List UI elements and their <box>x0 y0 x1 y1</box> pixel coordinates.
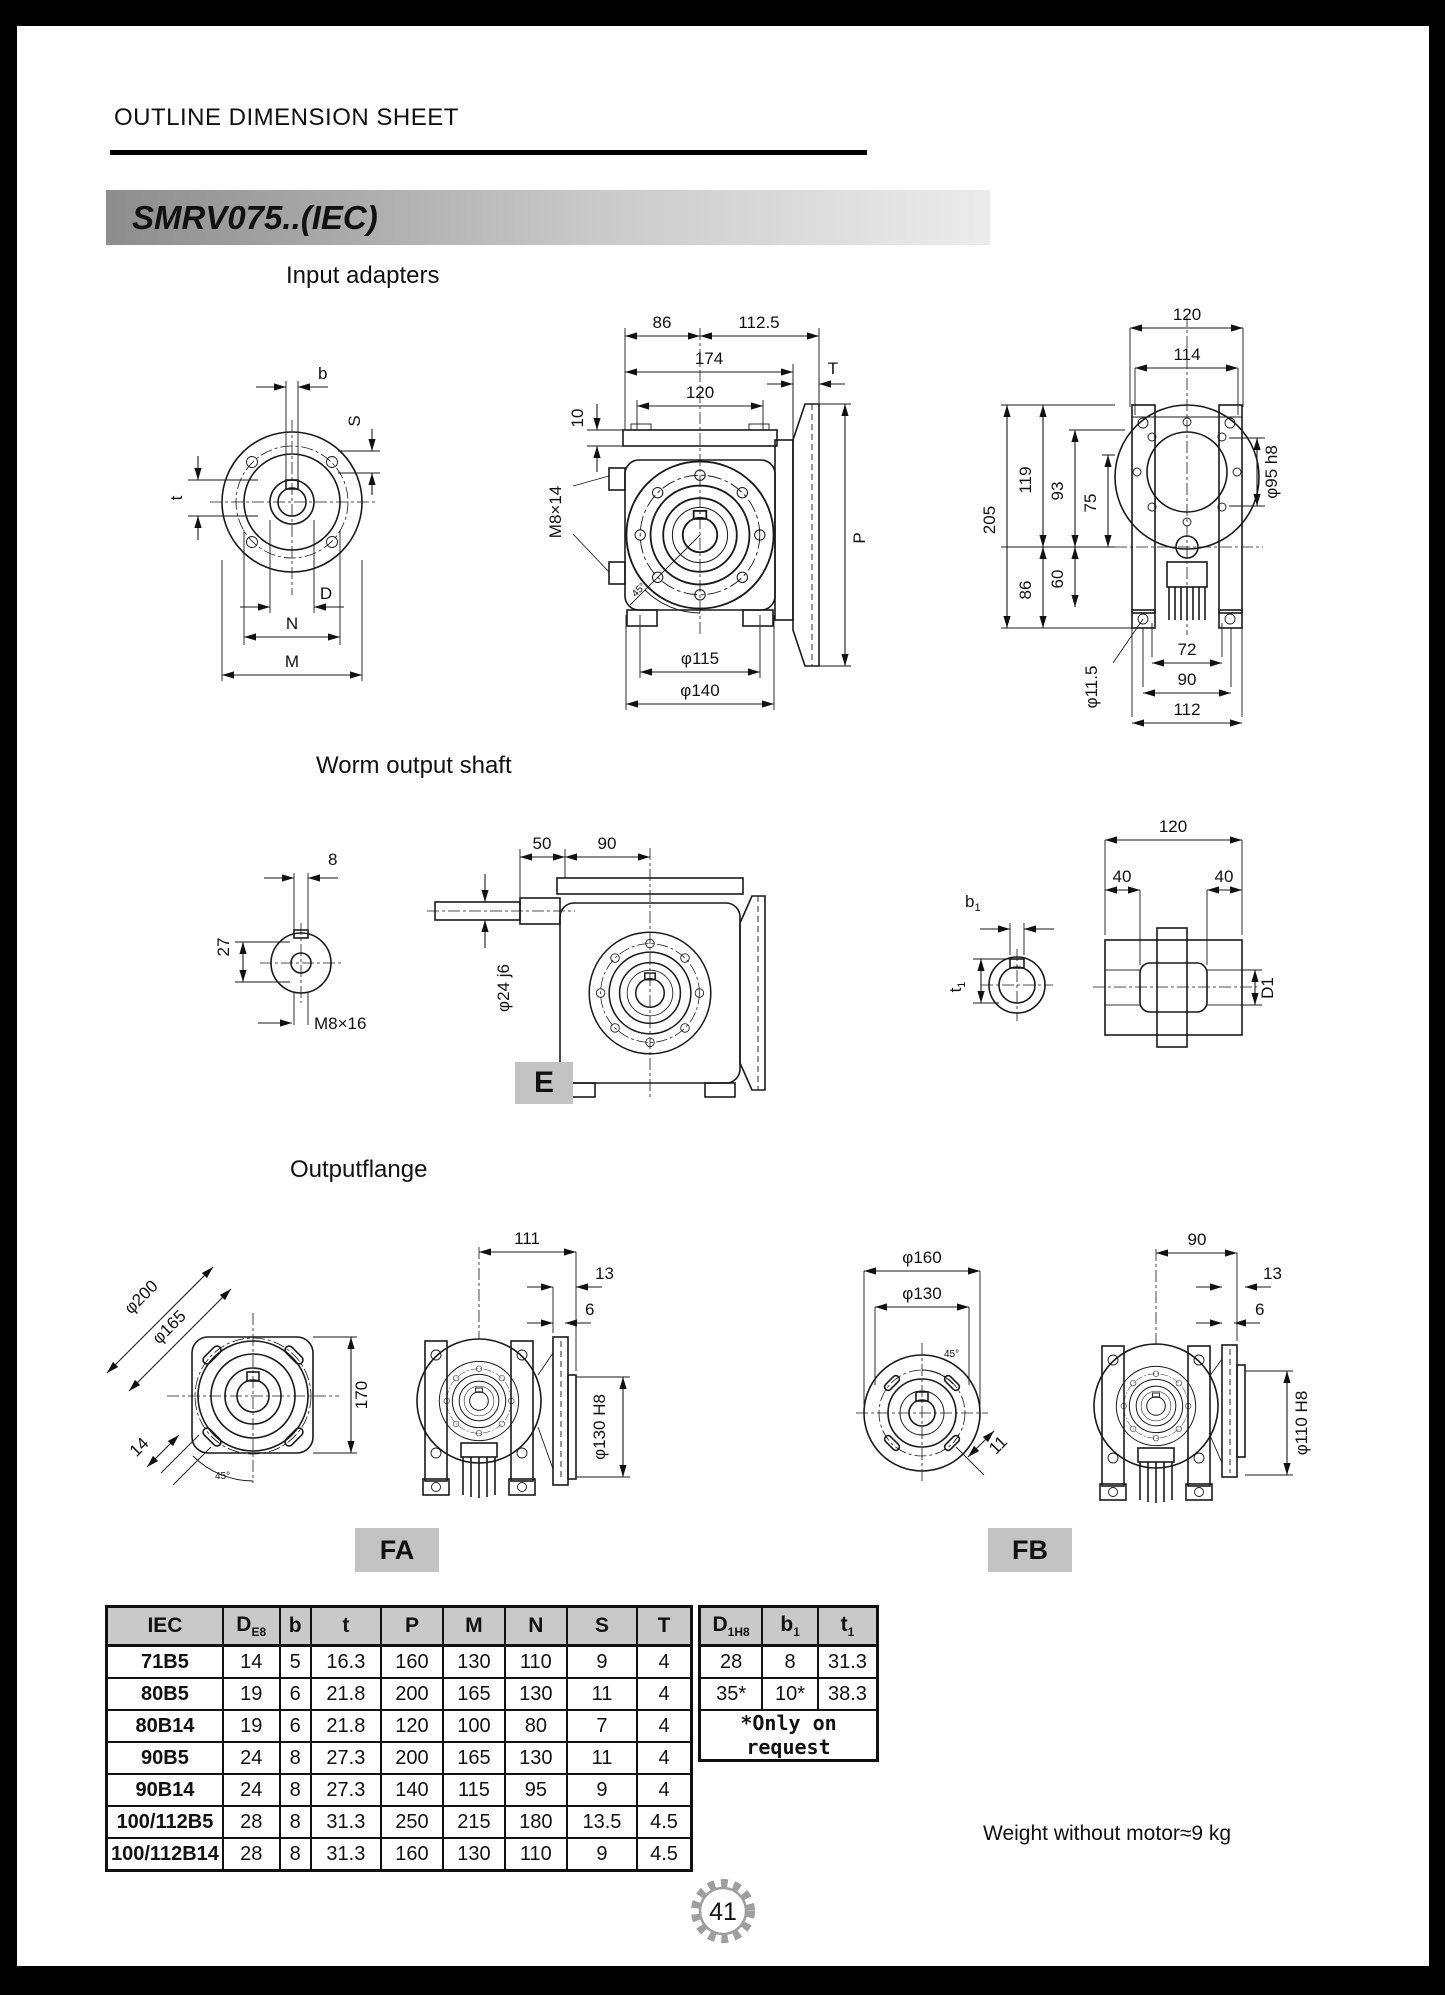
dim-45deg-label: 45° <box>944 1349 959 1360</box>
table-cell: 100/112B14 <box>107 1838 223 1871</box>
dim-14-label: 14 <box>126 1434 153 1461</box>
table-cell: 200 <box>381 1678 443 1710</box>
keyway-bore-geometry <box>981 923 1053 1021</box>
dimensions: 86 112.5 174 120 10 M8×14 T P φ115 φ140 … <box>546 313 869 710</box>
table-cell: 71B5 <box>107 1646 223 1679</box>
table-cell: 28 <box>223 1838 280 1871</box>
output-shaft-table: D1H8 b1 t1 28831.335*10*38.3 *Only on re… <box>698 1605 879 1762</box>
dimensions: 111 13 6 φ130 H8 <box>479 1229 630 1477</box>
dim-27-label: 27 <box>214 938 233 957</box>
section-title-outputflange: Outputflange <box>290 1156 427 1184</box>
drawing-input-adapter-face-view: b S t D N M <box>130 345 445 700</box>
table-cell: 80B5 <box>107 1678 223 1710</box>
table-cell: 95 <box>505 1774 567 1806</box>
dim-72-label: 72 <box>1178 640 1197 659</box>
table-cell: 90B5 <box>107 1742 223 1774</box>
dimensions: 8 27 M8×16 <box>214 850 366 1033</box>
drawing-input-adapter-side-view: 86 112.5 174 120 10 M8×14 T P φ115 φ140 … <box>535 300 880 725</box>
table-cell: 110 <box>505 1838 567 1871</box>
table-row: 35*10*38.3 <box>700 1678 878 1710</box>
drawing-input-adapter-rear-view: 120 114 205 119 86 93 60 75 φ95 h8 72 90… <box>985 295 1295 745</box>
page-number-gear: 41 <box>684 1872 762 1950</box>
dim-n-label: N <box>286 614 298 633</box>
dim-90-label: 90 <box>598 834 617 853</box>
table-cell: 27.3 <box>311 1742 381 1774</box>
dim-6-label: 6 <box>1255 1300 1264 1319</box>
variant-label-fb: FB <box>988 1528 1072 1572</box>
table-cell: 90B14 <box>107 1774 223 1806</box>
table-cell: 11 <box>567 1742 637 1774</box>
shaft-end-geometry <box>260 873 342 1025</box>
dim-d165-label: φ165 <box>148 1306 189 1347</box>
table-cell: 9 <box>567 1774 637 1806</box>
table-cell: 9 <box>567 1646 637 1679</box>
page-border-top <box>0 0 1445 26</box>
flange-face-geometry <box>210 381 375 595</box>
dim-d1-label: D1 <box>1258 977 1277 999</box>
table-cell: 4 <box>637 1646 691 1679</box>
table-cell: 4.5 <box>637 1838 691 1871</box>
dim-d-label: D <box>320 584 332 603</box>
table-cell: 200 <box>381 1742 443 1774</box>
table-cell: 165 <box>443 1678 505 1710</box>
table-cell: 4 <box>637 1710 691 1742</box>
dim-170-label: 170 <box>352 1381 371 1409</box>
table-cell: 6 <box>280 1678 311 1710</box>
table-row: 80B519621.8200165130114 <box>107 1678 692 1710</box>
weight-note: Weight without motor≈9 kg <box>983 1822 1231 1846</box>
table-cell: 160 <box>381 1646 443 1679</box>
table-cell: 100/112B5 <box>107 1806 223 1838</box>
drawing-hollow-output-shaft: b1 t1 120 40 40 D1 <box>935 795 1285 1050</box>
dimensions-left: b1 t1 <box>946 892 1054 1003</box>
table-cell: 120 <box>381 1710 443 1742</box>
table-note: *Only on request <box>700 1710 878 1761</box>
table-cell: 28 <box>223 1806 280 1838</box>
dim-119-label: 119 <box>1016 466 1035 493</box>
dim-10-label: 10 <box>568 409 587 428</box>
table-cell: 6 <box>280 1710 311 1742</box>
dim-40-right-label: 40 <box>1215 867 1234 886</box>
table-row: 90B1424827.31401159594 <box>107 1774 692 1806</box>
dim-b1-label: b1 <box>965 892 981 914</box>
drawing-fa-flange-face: φ200 φ165 170 14 45° <box>95 1255 405 1503</box>
dim-13-label: 13 <box>1263 1264 1282 1283</box>
section-title-input-adapters: Input adapters <box>286 262 439 290</box>
dim-90-label: 90 <box>1178 670 1197 689</box>
table-cell: 19 <box>223 1678 280 1710</box>
dim-120-label: 120 <box>686 383 714 402</box>
col-header-t: t <box>311 1607 381 1646</box>
table-row: 90B524827.3200165130114 <box>107 1742 692 1774</box>
table-cell: 4 <box>637 1678 691 1710</box>
gearbox-fa-geometry <box>417 1247 576 1498</box>
dim-d115-label: φ115 <box>681 649 719 668</box>
table-cell: 5 <box>280 1646 311 1679</box>
round-flange-geometry <box>856 1343 988 1483</box>
table-cell: 8 <box>762 1646 818 1679</box>
col-header-m: M <box>443 1607 505 1646</box>
table-cell: 215 <box>443 1806 505 1838</box>
page-border-left <box>0 0 17 1995</box>
table-cell: 28 <box>700 1646 763 1679</box>
dim-d130h8-label: φ130 H8 <box>590 1394 609 1460</box>
page-border-bottom <box>0 1966 1445 1995</box>
table-cell: 8 <box>280 1806 311 1838</box>
table-cell: 130 <box>505 1742 567 1774</box>
table-row: 100/112B1428831.316013011094.5 <box>107 1838 692 1871</box>
dim-d95h8-label: φ95 h8 <box>1262 445 1281 499</box>
dim-90-label: 90 <box>1188 1230 1207 1249</box>
table-cell: 160 <box>381 1838 443 1871</box>
table-cell: 130 <box>443 1646 505 1679</box>
table-cell: 35* <box>700 1678 763 1710</box>
table-row: 71B514516.316013011094 <box>107 1646 692 1679</box>
dim-6-label: 6 <box>585 1300 594 1319</box>
dim-t-label: T <box>828 359 838 378</box>
dim-120-label: 120 <box>1173 305 1201 324</box>
header-rule <box>110 150 867 155</box>
page-border-right <box>1429 0 1445 1995</box>
table-cell: 80 <box>505 1710 567 1742</box>
col-header-tt: T <box>637 1607 691 1646</box>
table-cell: 9 <box>567 1838 637 1871</box>
table-cell: 7 <box>567 1710 637 1742</box>
dimensions: 120 114 205 119 86 93 60 75 φ95 h8 72 90… <box>980 305 1281 723</box>
table-row: 100/112B528831.325021518013.54.5 <box>107 1806 692 1838</box>
dim-111-label: 111 <box>514 1229 540 1248</box>
dim-d200-label: φ200 <box>120 1276 161 1317</box>
variant-label-e: E <box>515 1062 573 1104</box>
table-cell: 38.3 <box>818 1678 878 1710</box>
table-cell: 27.3 <box>311 1774 381 1806</box>
col-header-b: b <box>280 1607 311 1646</box>
dim-t1-label: t1 <box>946 982 968 993</box>
dim-75-label: 75 <box>1081 494 1100 513</box>
table-cell: 4.5 <box>637 1806 691 1838</box>
table-cell: 180 <box>505 1806 567 1838</box>
table-cell: 130 <box>505 1678 567 1710</box>
page-number: 41 <box>709 1898 737 1926</box>
dim-205-label: 205 <box>980 506 999 534</box>
drawing-fb-side-view: 90 13 6 φ110 H8 <box>1085 1225 1345 1525</box>
table-cell: 115 <box>443 1774 505 1806</box>
iec-dimension-table: IEC DE8 b t P M N S T 71B514516.31601301… <box>105 1605 693 1872</box>
page-title: OUTLINE DIMENSION SHEET <box>114 104 459 132</box>
drawing-fa-side-view: 111 13 6 φ130 H8 <box>405 1225 650 1520</box>
dim-d140-label: φ140 <box>680 681 719 700</box>
dimensions: 50 90 φ24 j6 <box>485 834 650 1012</box>
table-cell: 130 <box>443 1838 505 1871</box>
table-header-row: IEC DE8 b t P M N S T <box>107 1607 692 1646</box>
table-cell: 31.3 <box>311 1806 381 1838</box>
table-cell: 13.5 <box>567 1806 637 1838</box>
gearbox-side-geometry <box>609 328 819 666</box>
gearbox-fb-geometry <box>1094 1249 1245 1503</box>
table-cell: 19 <box>223 1710 280 1742</box>
dim-112-label: 112 <box>1173 700 1200 719</box>
model-banner: SMRV075..(IEC) <box>106 190 990 245</box>
dim-d110h8-label: φ110 H8 <box>1292 1391 1311 1456</box>
drawing-fb-flange-face: φ160 φ130 45° 11 <box>840 1235 1070 1490</box>
table-cell: 14 <box>223 1646 280 1679</box>
dimensions: b S t D N M <box>167 364 380 681</box>
dim-8-label: 8 <box>328 850 337 869</box>
col-header-n: N <box>505 1607 567 1646</box>
col-header-d1h8: D1H8 <box>700 1607 763 1646</box>
table-cell: 24 <box>223 1774 280 1806</box>
dim-p-label: P <box>850 532 869 543</box>
dim-45deg-label: 45° <box>215 1471 230 1482</box>
col-header-d: DE8 <box>223 1607 280 1646</box>
col-header-p: P <box>381 1607 443 1646</box>
variant-label-fa: FA <box>355 1528 439 1572</box>
dim-d160-label: φ160 <box>902 1248 941 1267</box>
dim-d130-label: φ130 <box>902 1284 941 1303</box>
table-cell: 80B14 <box>107 1710 223 1742</box>
table-cell: 8 <box>280 1774 311 1806</box>
table-cell: 110 <box>505 1646 567 1679</box>
col-header-iec: IEC <box>107 1607 223 1646</box>
dim-d24j6-label: φ24 j6 <box>494 964 513 1012</box>
col-header-t1: t1 <box>818 1607 878 1646</box>
dim-174-label: 174 <box>695 349 723 368</box>
col-header-s: S <box>567 1607 637 1646</box>
table-cell: 10* <box>762 1678 818 1710</box>
dim-m8x14-label: M8×14 <box>546 486 565 538</box>
col-header-b1: b1 <box>762 1607 818 1646</box>
dim-86-label: 86 <box>653 313 672 332</box>
table-cell: 31.3 <box>311 1838 381 1871</box>
table-cell: 8 <box>280 1742 311 1774</box>
table-cell: 165 <box>443 1742 505 1774</box>
section-title-worm-output-shaft: Worm output shaft <box>316 752 512 780</box>
table-row: 80B1419621.81201008074 <box>107 1710 692 1742</box>
table-cell: 24 <box>223 1742 280 1774</box>
dim-60-label: 60 <box>1048 570 1067 589</box>
drawing-worm-shaft-side-view: 50 90 φ24 j6 <box>425 818 795 1088</box>
dim-m8x16-label: M8×16 <box>314 1014 366 1033</box>
table-note-row: *Only on request <box>700 1710 878 1761</box>
table-cell: 4 <box>637 1742 691 1774</box>
dim-50-label: 50 <box>533 834 552 853</box>
dim-93-label: 93 <box>1048 482 1067 501</box>
table-row: 28831.3 <box>700 1646 878 1679</box>
dim-t-label: t <box>167 495 186 500</box>
dim-s-label: S <box>345 415 364 426</box>
dim-d11-5-label: φ11.5 <box>1082 666 1101 709</box>
dimension-table-area: IEC DE8 b t P M N S T 71B514516.31601301… <box>105 1605 879 1872</box>
table-cell: 31.3 <box>818 1646 878 1679</box>
dim-m-label: M <box>285 652 299 671</box>
table-cell: 11 <box>567 1678 637 1710</box>
table-cell: 250 <box>381 1806 443 1838</box>
dim-13-label: 13 <box>595 1264 614 1283</box>
table-cell: 100 <box>443 1710 505 1742</box>
square-flange-geometry <box>167 1313 339 1483</box>
dim-120-label: 120 <box>1159 817 1187 836</box>
table-cell: 21.8 <box>311 1678 381 1710</box>
dim-40-left-label: 40 <box>1113 867 1132 886</box>
dimensions-right: 120 40 40 D1 <box>1105 817 1277 1005</box>
gearbox-with-shaft-geometry <box>427 848 765 1100</box>
model-title: SMRV075..(IEC) <box>106 190 990 245</box>
dim-114-label: 114 <box>1173 345 1200 364</box>
shaft-section-geometry <box>1093 928 1257 1047</box>
table-cell: 4 <box>637 1774 691 1806</box>
dim-112-5-label: 112.5 <box>738 313 779 332</box>
table-cell: 16.3 <box>311 1646 381 1679</box>
table-cell: 8 <box>280 1838 311 1871</box>
table-cell: 140 <box>381 1774 443 1806</box>
drawing-worm-shaft-end-view: 8 27 M8×16 <box>180 845 440 1055</box>
table-header-row: D1H8 b1 t1 <box>700 1607 878 1646</box>
dim-86-label: 86 <box>1016 581 1035 600</box>
dim-b-label: b <box>318 364 327 383</box>
table-cell: 21.8 <box>311 1710 381 1742</box>
